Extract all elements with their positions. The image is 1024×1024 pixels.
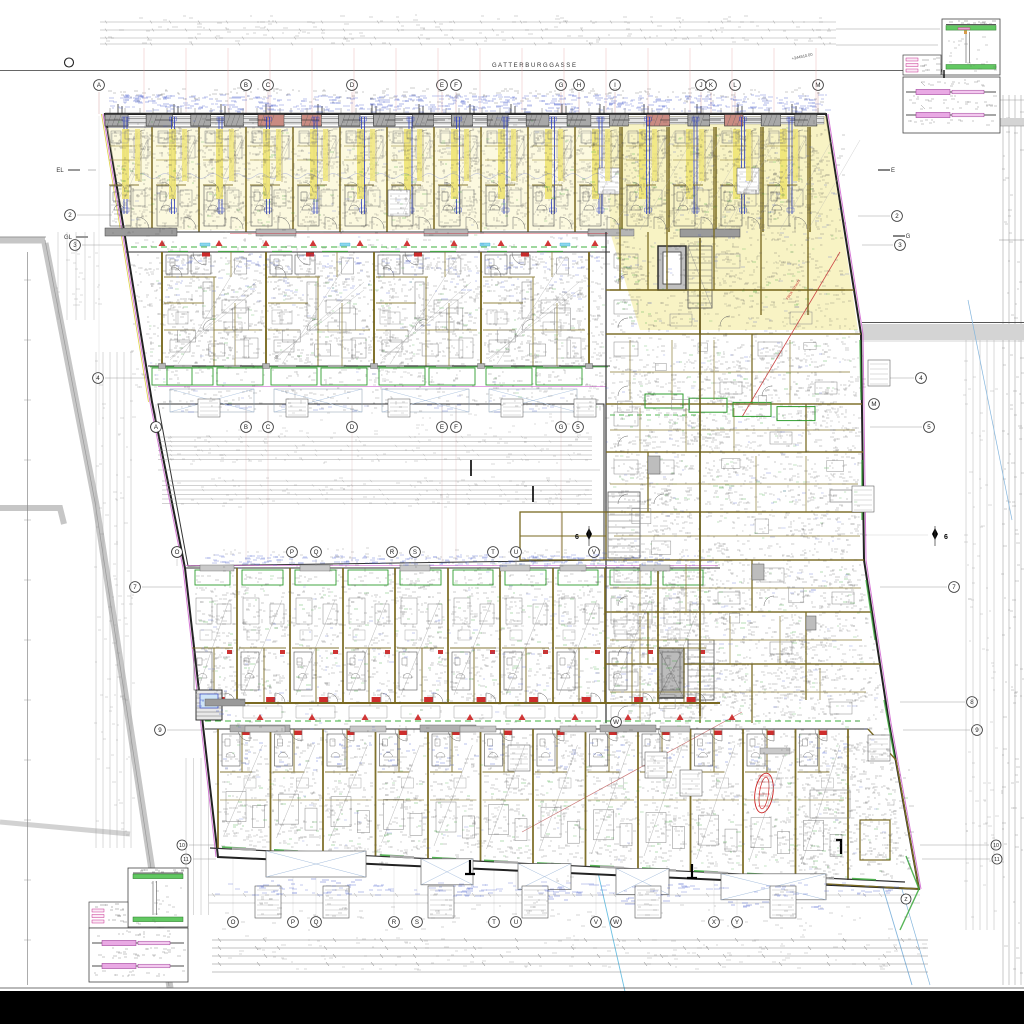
svg-text:6: 6 xyxy=(944,534,948,541)
svg-text:7: 7 xyxy=(133,584,137,591)
svg-text:B: B xyxy=(244,424,248,431)
svg-text:I: I xyxy=(614,82,616,89)
svg-text:Q: Q xyxy=(314,919,319,926)
svg-text:O: O xyxy=(175,549,180,556)
svg-text:5: 5 xyxy=(576,424,580,431)
svg-text:3: 3 xyxy=(73,242,77,249)
svg-text:S: S xyxy=(415,919,419,926)
svg-text:R: R xyxy=(392,919,397,926)
svg-text:EL: EL xyxy=(56,168,64,174)
svg-text:4: 4 xyxy=(96,375,100,382)
svg-text:G: G xyxy=(559,424,564,431)
svg-text:4: 4 xyxy=(919,375,923,382)
svg-text:P: P xyxy=(291,919,295,926)
svg-text:3: 3 xyxy=(898,242,902,249)
svg-text:W: W xyxy=(613,919,619,926)
svg-text:E: E xyxy=(440,82,444,89)
svg-text:E: E xyxy=(891,168,895,174)
svg-text:9: 9 xyxy=(975,727,979,734)
svg-text:G A T T E R B U R G G A S S E: G A T T E R B U R G G A S S E xyxy=(492,63,576,69)
svg-text:M: M xyxy=(871,401,876,408)
svg-text:S: S xyxy=(413,549,417,556)
svg-text:G: G xyxy=(906,234,911,240)
svg-text:W: W xyxy=(613,719,619,726)
svg-text:2: 2 xyxy=(895,213,899,220)
svg-text:C: C xyxy=(266,424,271,431)
svg-text:F: F xyxy=(454,82,458,89)
svg-text:8: 8 xyxy=(970,699,974,706)
svg-text:U: U xyxy=(514,549,518,556)
svg-text:L: L xyxy=(733,82,737,89)
svg-text:F: F xyxy=(454,424,458,431)
svg-text:6: 6 xyxy=(575,534,579,541)
svg-text:U: U xyxy=(514,919,518,926)
svg-text:J: J xyxy=(699,82,702,89)
svg-text:B: B xyxy=(244,82,248,89)
svg-text:10: 10 xyxy=(179,843,185,849)
svg-text:O: O xyxy=(231,919,236,926)
svg-text:5: 5 xyxy=(927,424,931,431)
svg-text:9: 9 xyxy=(158,727,162,734)
svg-text:P: P xyxy=(290,549,294,556)
svg-text:T: T xyxy=(492,919,496,926)
svg-text:Q: Q xyxy=(314,549,319,556)
svg-text:D: D xyxy=(350,424,355,431)
svg-text:R: R xyxy=(390,549,395,556)
svg-text:2: 2 xyxy=(68,212,72,219)
svg-text:7: 7 xyxy=(952,584,956,591)
svg-text:E: E xyxy=(440,424,444,431)
svg-text:GL: GL xyxy=(64,235,73,241)
svg-text:11: 11 xyxy=(994,857,999,863)
svg-text:Z: Z xyxy=(904,897,907,903)
svg-text:T: T xyxy=(491,549,495,556)
svg-text:H: H xyxy=(577,82,581,89)
svg-text:G: G xyxy=(559,82,564,89)
svg-text:Y: Y xyxy=(735,919,739,926)
